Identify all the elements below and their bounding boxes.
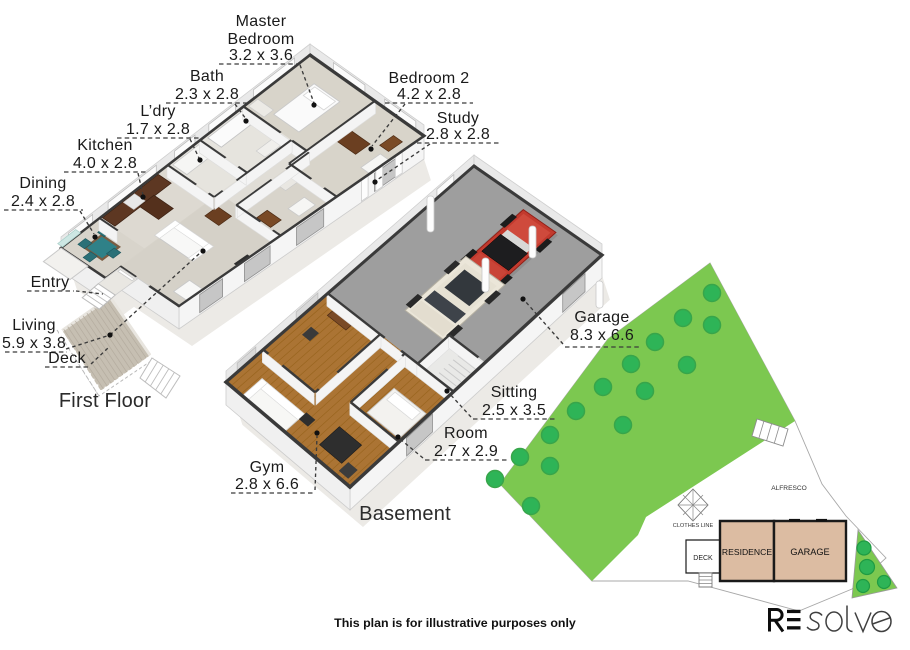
svg-text:Basement: Basement — [359, 503, 451, 525]
svg-text:Sitting: Sitting — [491, 384, 538, 401]
svg-text:Entry: Entry — [31, 274, 70, 291]
svg-text:4.2 x 2.8: 4.2 x 2.8 — [397, 86, 461, 103]
svg-text:Study: Study — [437, 110, 479, 127]
svg-text:4.0 x 2.8: 4.0 x 2.8 — [73, 155, 137, 172]
svg-text:Master: Master — [236, 13, 287, 30]
svg-text:Living: Living — [12, 317, 56, 334]
svg-text:This plan is for illustrative: This plan is for illustrative purposes o… — [334, 616, 576, 630]
svg-text:Bedroom 2: Bedroom 2 — [389, 70, 470, 87]
svg-text:8.3 x 6.6: 8.3 x 6.6 — [570, 327, 634, 344]
svg-text:GARAGE: GARAGE — [790, 547, 829, 557]
svg-text:3.2 x 3.6: 3.2 x 3.6 — [229, 47, 293, 64]
svg-text:2.8 x 2.8: 2.8 x 2.8 — [426, 126, 490, 143]
svg-text:1.7 x 2.8: 1.7 x 2.8 — [126, 121, 190, 138]
svg-text:2.3 x 2.8: 2.3 x 2.8 — [175, 86, 239, 103]
svg-text:ALFRESCO: ALFRESCO — [771, 485, 807, 492]
svg-text:Deck: Deck — [48, 350, 86, 367]
svg-text:Garage: Garage — [574, 309, 629, 326]
svg-text:L’dry: L’dry — [140, 103, 175, 120]
svg-text:CLOTHES LINE: CLOTHES LINE — [673, 523, 714, 529]
svg-text:Dining: Dining — [19, 175, 66, 192]
svg-text:Gym: Gym — [250, 459, 285, 476]
svg-text:2.5 x 3.5: 2.5 x 3.5 — [482, 402, 546, 419]
svg-text:Bedroom: Bedroom — [227, 31, 294, 48]
svg-text:2.7 x 2.9: 2.7 x 2.9 — [434, 443, 498, 460]
svg-text:Bath: Bath — [190, 68, 224, 85]
svg-text:Room: Room — [444, 425, 488, 442]
svg-text:2.4 x 2.8: 2.4 x 2.8 — [11, 193, 75, 210]
svg-text:First Floor: First Floor — [59, 390, 151, 412]
svg-text:DECK: DECK — [693, 555, 713, 562]
svg-text:RESIDENCE: RESIDENCE — [722, 547, 772, 557]
svg-text:2.8 x 6.6: 2.8 x 6.6 — [235, 476, 299, 493]
svg-text:Kitchen: Kitchen — [77, 137, 132, 154]
